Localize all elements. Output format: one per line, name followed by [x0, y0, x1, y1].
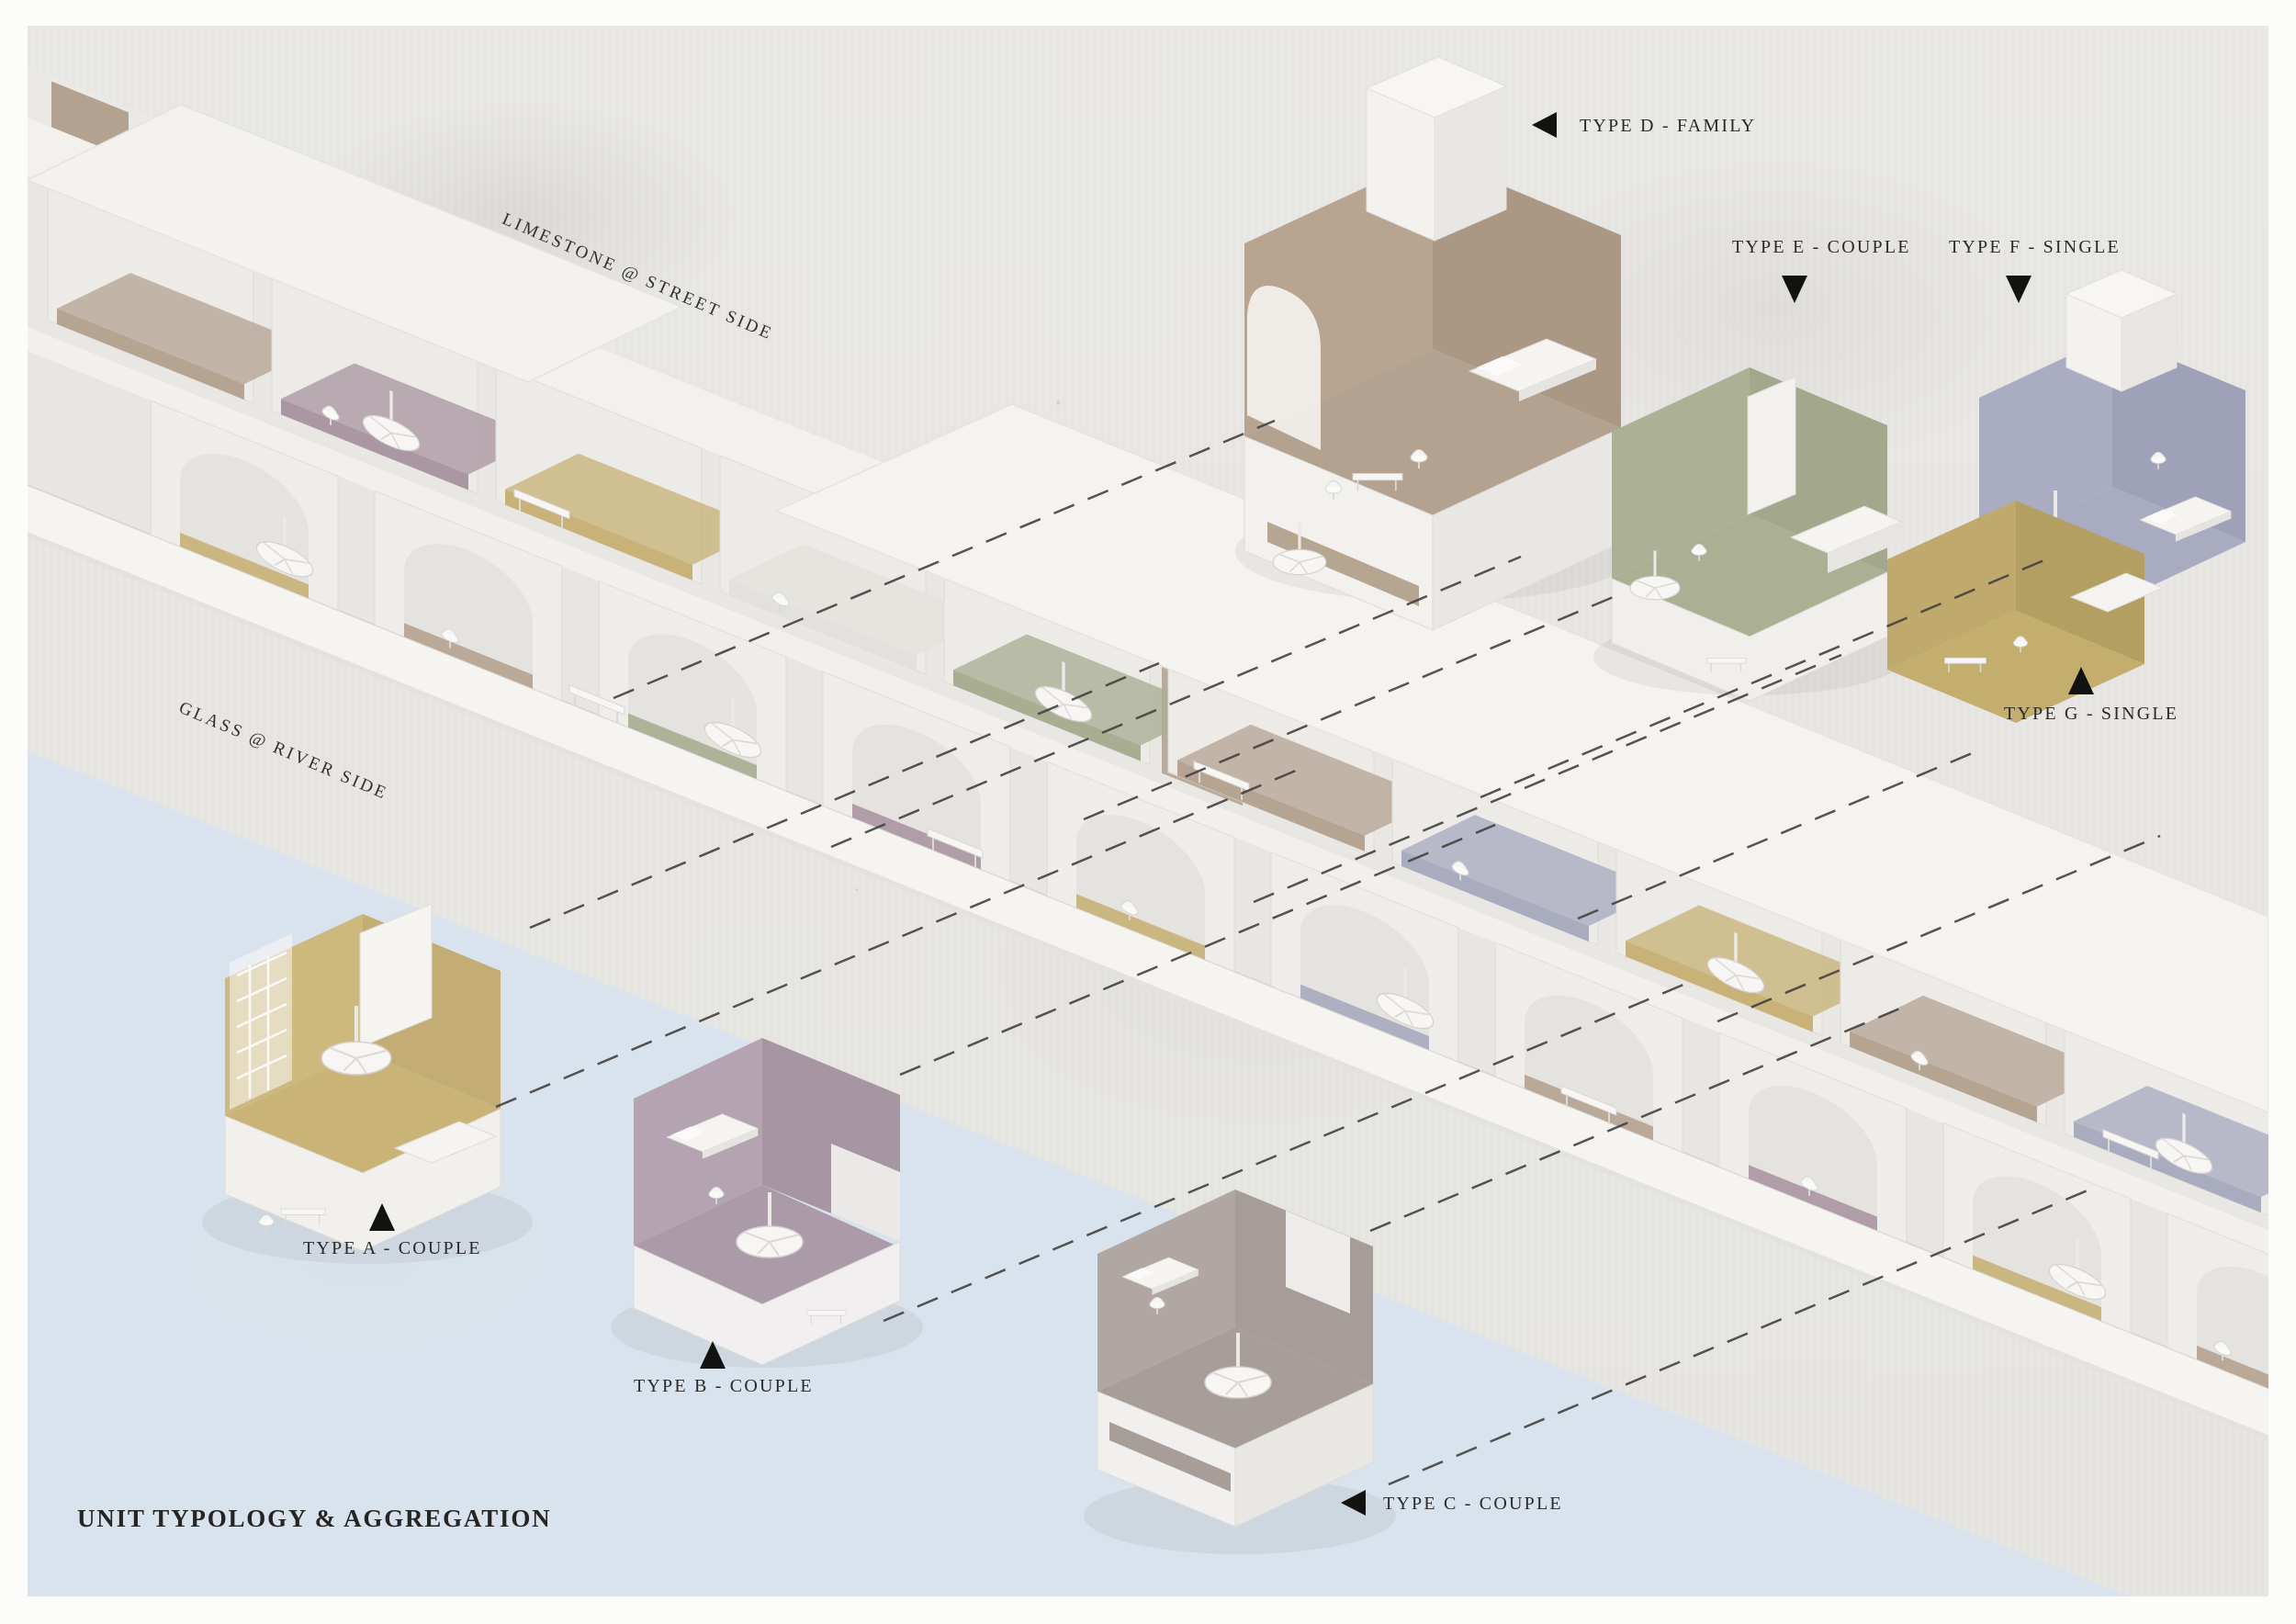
type-g-arrow-icon [2068, 667, 2094, 694]
type-a-label: TYPE A - COUPLE [303, 1238, 482, 1259]
drawing-panel [28, 26, 2268, 1596]
page-title: UNIT TYPOLOGY & AGGREGATION [77, 1505, 551, 1533]
axonometric-drawing [28, 26, 2268, 1596]
type-f-arrow-icon [2006, 276, 2032, 303]
unit-axon-e [1593, 367, 1906, 701]
type-d-arrow-icon [1532, 112, 1557, 138]
type-a-arrow-icon [369, 1203, 395, 1231]
unit-axon-b [611, 1038, 923, 1368]
type-d-label: TYPE D - FAMILY [1580, 116, 1756, 137]
type-c-label: TYPE C - COUPLE [1383, 1494, 1563, 1515]
type-c-arrow-icon [1341, 1490, 1366, 1516]
type-b-arrow-icon [700, 1341, 726, 1369]
presentation-board: LIMESTONE @ STREET SIDE GLASS @ RIVER SI… [0, 0, 2296, 1624]
type-g-label: TYPE G - SINGLE [2004, 704, 2178, 725]
type-f-label: TYPE F - SINGLE [1949, 237, 2121, 258]
type-e-arrow-icon [1782, 276, 1807, 303]
type-b-label: TYPE B - COUPLE [634, 1376, 814, 1397]
type-e-label: TYPE E - COUPLE [1732, 237, 1911, 258]
unit-axon-d [1235, 57, 1639, 630]
